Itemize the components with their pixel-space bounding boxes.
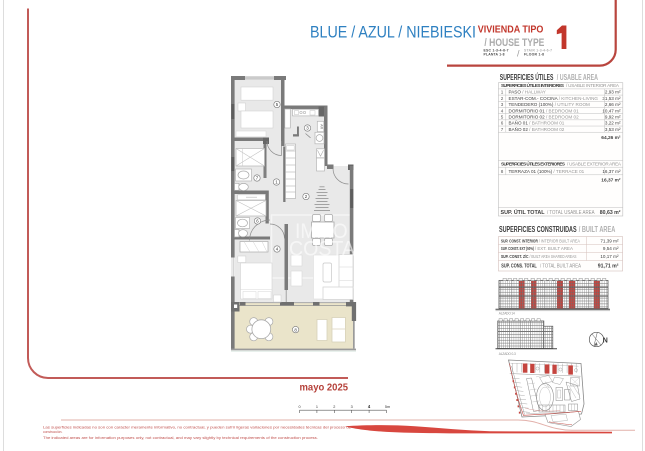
svg-text:PASO / HALLWAY: PASO / HALLWAY [509, 90, 546, 95]
svg-text:N: N [603, 337, 608, 344]
svg-text:FLOOR 1-8: FLOOR 1-8 [524, 53, 544, 57]
svg-text:mayo 2025: mayo 2025 [300, 383, 349, 394]
svg-text:3,22 m²: 3,22 m² [605, 121, 621, 126]
svg-text:SUP. CONST. INTERIOR: SUP. CONST. INTERIOR [501, 238, 538, 243]
svg-text:/ BUILT AREA SHARED AREAS: / BUILT AREA SHARED AREAS [530, 254, 577, 259]
svg-text:SUPERFICIES CONSTRUIDAS: SUPERFICIES CONSTRUIDAS [499, 225, 577, 234]
svg-text:SUP. CONST. EXT (50%): SUP. CONST. EXT (50%) [501, 246, 534, 251]
svg-text:SUP. CONS. TOTAL: SUP. CONS. TOTAL [501, 264, 537, 270]
svg-text:PLANTA 1-8: PLANTA 1-8 [484, 53, 505, 57]
svg-text:/ USABLE INTERIOR AREA: / USABLE INTERIOR AREA [566, 83, 620, 88]
svg-text:10,47 m²: 10,47 m² [602, 108, 621, 113]
svg-text:construcción.: construcción. [43, 430, 63, 434]
svg-text:91,71 m²: 91,71 m² [598, 264, 619, 270]
svg-text:80,63 m²: 80,63 m² [600, 210, 621, 216]
svg-text:3,53 m²: 3,53 m² [605, 127, 621, 132]
svg-text:0: 0 [298, 405, 300, 409]
svg-text:SUP. ÚTIL TOTAL: SUP. ÚTIL TOTAL [501, 209, 546, 216]
svg-text:2: 2 [501, 96, 504, 101]
svg-text:AR: AR [320, 124, 324, 129]
svg-text:1: 1 [316, 405, 318, 409]
svg-text:/ TOTAL USABLE AREA: / TOTAL USABLE AREA [547, 210, 595, 216]
svg-text:/ BUILT AREA: / BUILT AREA [579, 225, 616, 234]
svg-text:SUPERFICIES ÚTILES EXTERIORES: SUPERFICIES ÚTILES EXTERIORES [501, 161, 565, 167]
svg-text:ALZADO 0-3: ALZADO 0-3 [499, 352, 516, 356]
svg-text:SUPERFICIES ÚTILES: SUPERFICIES ÚTILES [500, 73, 554, 82]
svg-text:9,92 m²: 9,92 m² [605, 114, 621, 119]
svg-text:16,37 m²: 16,37 m² [602, 169, 621, 174]
svg-text:5: 5 [501, 114, 504, 119]
svg-text:VIVIENDA TIPO: VIVIENDA TIPO [478, 24, 544, 36]
svg-text:TENDEDERO (100%) / UTILITY ROO: TENDEDERO (100%) / UTILITY ROOM [509, 102, 591, 107]
svg-text:10,17 m²: 10,17 m² [600, 254, 619, 259]
svg-text:2,66 m²: 2,66 m² [605, 102, 621, 107]
svg-text:/ TOTAL BUILT AREA: / TOTAL BUILT AREA [540, 264, 581, 270]
svg-text:/ INTERIOR BUILT AREA: / INTERIOR BUILT AREA [539, 238, 581, 243]
svg-text:SUP. CONST. Z/C: SUP. CONST. Z/C [501, 254, 529, 259]
svg-text:TERRAZA 01 (100%) / TERRACE 01: TERRAZA 01 (100%) / TERRACE 01 [509, 169, 585, 174]
svg-text:31,53 m²: 31,53 m² [602, 96, 621, 101]
svg-text:Las superficies indicadas no s: Las superficies indicadas no son con car… [43, 426, 351, 430]
svg-text:7: 7 [501, 127, 504, 132]
svg-text:1: 1 [501, 90, 504, 95]
svg-text:/ USABLE AREA: / USABLE AREA [557, 73, 598, 82]
svg-text:/ USABLE EXTERIOR AREA: / USABLE EXTERIOR AREA [567, 162, 622, 167]
svg-text:ESTAR-COM.- COCINA / KITCHEN-L: ESTAR-COM.- COCINA / KITCHEN-LIVING [509, 96, 599, 101]
svg-text:64,26 m²: 64,26 m² [601, 135, 621, 141]
svg-text:9,54 m²: 9,54 m² [603, 246, 619, 251]
svg-text:6: 6 [501, 121, 504, 126]
svg-text:SUPERFICIES ÚTILES INTERIORES: SUPERFICIES ÚTILES INTERIORES [501, 82, 564, 88]
svg-text:DORMITORIO 02 / BEDROOM 02: DORMITORIO 02 / BEDROOM 02 [509, 114, 580, 119]
svg-text:The indicated areas are for in: The indicated areas are for information … [43, 436, 318, 440]
svg-text:4: 4 [501, 108, 504, 113]
svg-text:5m: 5m [385, 405, 390, 409]
svg-text:COSTA: COSTA [289, 238, 355, 261]
svg-text:71,39 m²: 71,39 m² [600, 238, 619, 243]
svg-text:BAÑO 01 / BATHROOM 01: BAÑO 01 / BATHROOM 01 [509, 120, 565, 126]
svg-text:BLUE / AZUL / NIEBIESKI: BLUE / AZUL / NIEBIESKI [310, 22, 476, 41]
svg-text:3: 3 [501, 102, 504, 107]
svg-text:16,37 m²: 16,37 m² [601, 177, 621, 183]
svg-text:DORMITORIO 01 / BEDROOM 01: DORMITORIO 01 / BEDROOM 01 [509, 108, 580, 113]
svg-text:/ EXT. BUILT AREA: / EXT. BUILT AREA [535, 246, 574, 251]
svg-text:3: 3 [351, 405, 353, 409]
svg-text:8: 8 [501, 169, 504, 174]
svg-text:BAÑO 02 / BATHROOM 02: BAÑO 02 / BATHROOM 02 [509, 126, 565, 132]
svg-text:/: / [517, 49, 520, 59]
svg-text:2: 2 [333, 405, 335, 409]
svg-text:4: 4 [368, 404, 371, 409]
svg-text:ALZADO 14: ALZADO 14 [499, 311, 515, 315]
svg-text:/ HOUSE TYPE: / HOUSE TYPE [484, 37, 544, 49]
svg-text:2,93 m²: 2,93 m² [605, 90, 621, 95]
